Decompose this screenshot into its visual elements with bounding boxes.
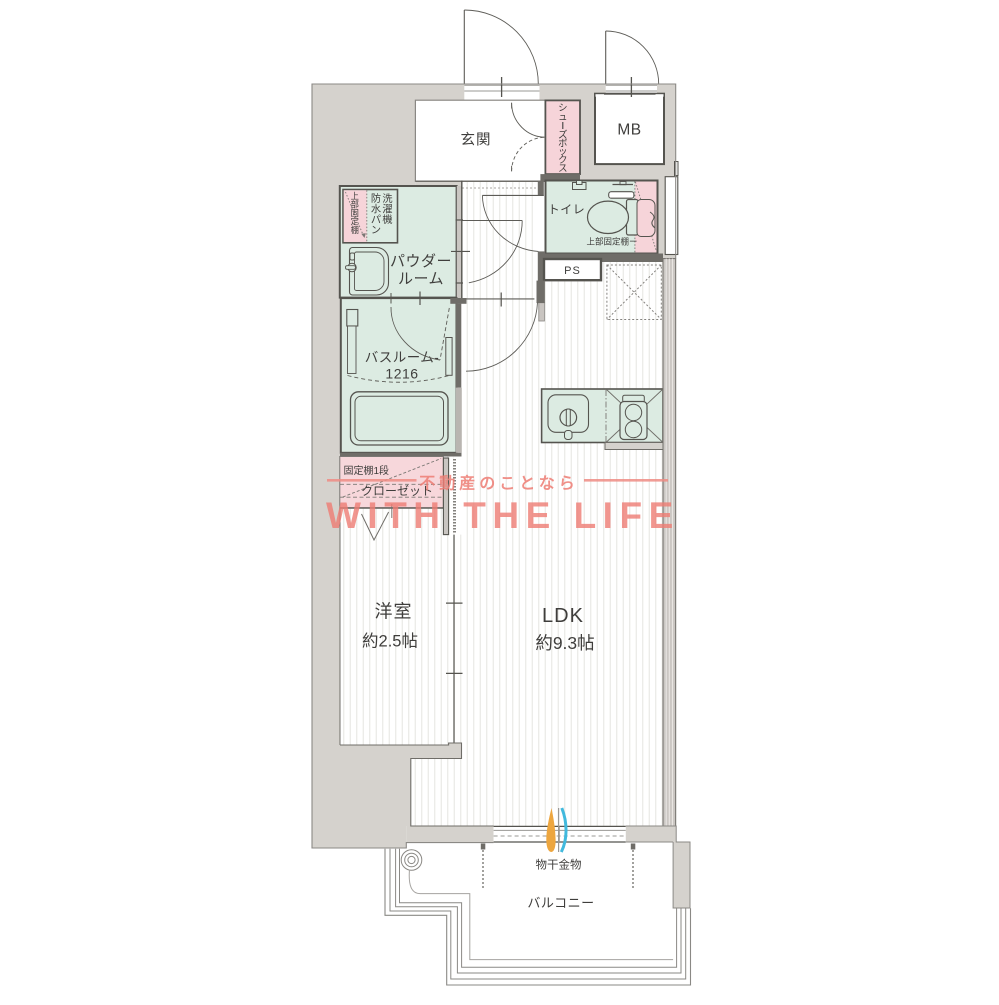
svg-text:パ: パ [371, 214, 381, 226]
svg-text:機: 機 [382, 213, 392, 226]
svg-text:1216: 1216 [385, 366, 418, 382]
svg-text:棚: 棚 [351, 225, 359, 235]
svg-text:ス: ス [558, 163, 567, 174]
svg-text:洗: 洗 [382, 193, 392, 205]
svg-text:ルーム: ルーム [398, 271, 444, 288]
svg-text:バルコニー: バルコニー [527, 896, 594, 911]
svg-text:トイレ: トイレ [548, 203, 586, 217]
svg-text:約9.3帖: 約9.3帖 [535, 633, 594, 653]
svg-text:防: 防 [371, 192, 381, 205]
svg-text:約2.5帖: 約2.5帖 [362, 632, 418, 651]
svg-text:上部固定棚ー: 上部固定棚ー [586, 237, 637, 247]
svg-text:濯: 濯 [382, 204, 392, 216]
svg-text:パウダー: パウダー [390, 253, 452, 270]
svg-text:固定棚1段: 固定棚1段 [344, 464, 390, 477]
svg-text:ュ: ュ [558, 111, 567, 122]
svg-text:物干金物: 物干金物 [536, 858, 582, 872]
svg-text:ン: ン [371, 226, 381, 237]
svg-text:水: 水 [371, 204, 381, 216]
svg-text:LDK: LDK [542, 605, 584, 627]
svg-text:玄関: 玄関 [461, 132, 492, 149]
svg-text:WITH THE LIFE: WITH THE LIFE [326, 495, 680, 536]
svg-text:洋室: 洋室 [375, 602, 413, 622]
svg-text:MB: MB [617, 122, 641, 139]
svg-text:PS: PS [564, 265, 581, 277]
svg-text:不動産のことなら: 不動産のことなら [419, 474, 579, 493]
